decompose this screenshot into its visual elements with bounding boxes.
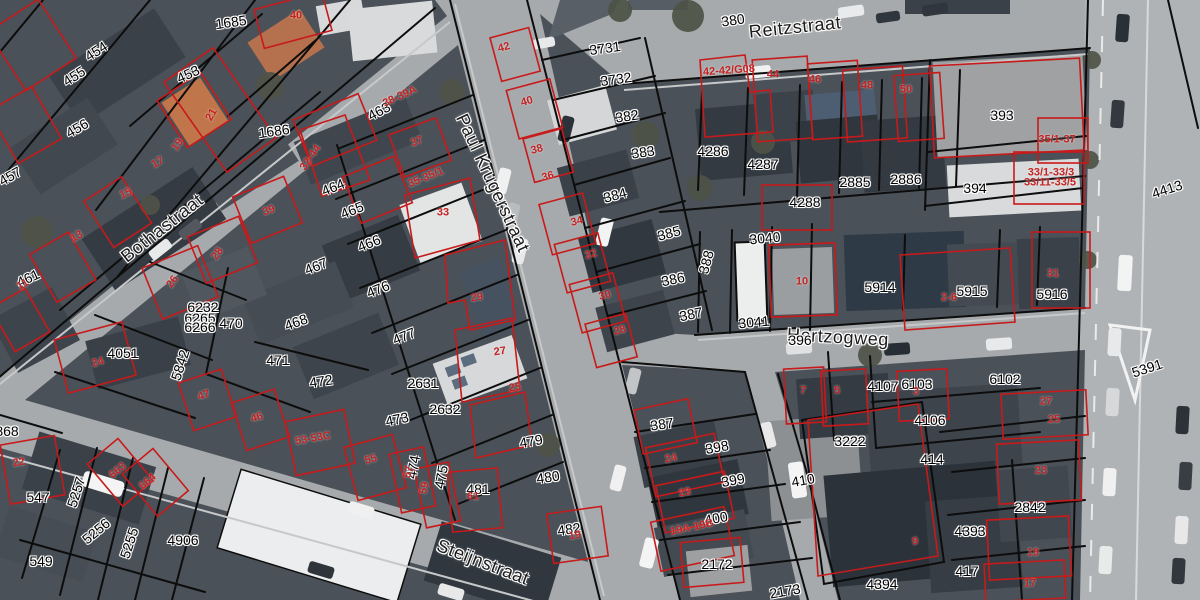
aerial-base-layer	[0, 0, 1200, 600]
map-canvas[interactable]: ReitzstraatPaul KrugerstraatBothastraatH…	[0, 0, 1200, 600]
